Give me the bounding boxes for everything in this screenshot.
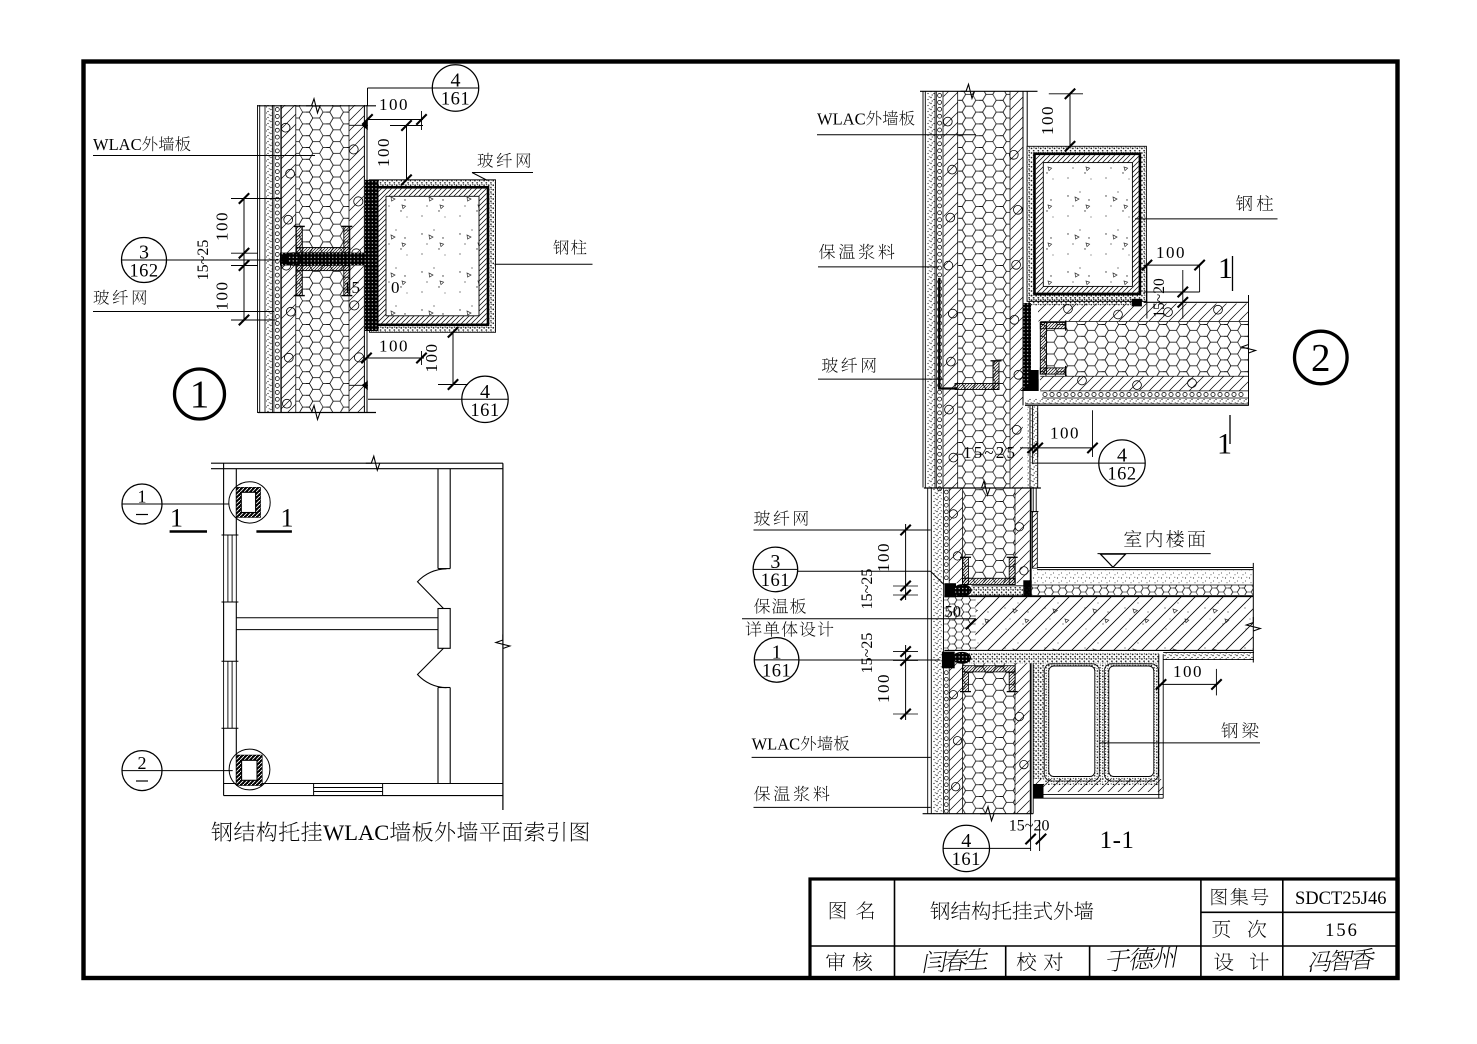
svg-text:100: 100 [1173,662,1203,681]
svg-text:161: 161 [762,661,791,681]
svg-text:2: 2 [138,753,147,773]
svg-text:15~25: 15~25 [963,443,1017,462]
svg-text:3: 3 [139,242,149,264]
svg-text:100: 100 [1038,105,1057,135]
svg-text:1: 1 [772,641,782,663]
svg-text:100: 100 [1050,424,1080,443]
svg-text:3: 3 [770,551,780,573]
svg-text:1: 1 [190,373,210,416]
svg-text:156: 156 [1325,921,1359,941]
svg-text:4: 4 [1117,445,1127,467]
svg-text:100: 100 [379,95,409,114]
svg-text:100: 100 [213,281,232,311]
svg-text:100: 100 [874,673,893,703]
svg-text:161: 161 [761,571,790,591]
svg-text:WLAC: WLAC [817,109,866,128]
svg-text:0: 0 [391,278,400,297]
svg-text:100: 100 [374,137,393,167]
svg-text:4: 4 [451,70,461,92]
svg-text:161: 161 [441,90,470,110]
svg-text:SDCT25J46: SDCT25J46 [1295,889,1387,909]
svg-text:161: 161 [952,850,981,870]
svg-text:15~25: 15~25 [859,569,876,610]
svg-text:WLAC: WLAC [752,735,801,754]
svg-text:100: 100 [379,337,409,356]
svg-text:100: 100 [213,211,232,241]
svg-text:100: 100 [1156,243,1186,262]
svg-text:4: 4 [961,830,971,852]
svg-text:1: 1 [1218,252,1233,285]
svg-text:1: 1 [138,487,147,507]
svg-text:2: 2 [1311,337,1331,380]
svg-text:162: 162 [1107,465,1136,485]
svg-text:1: 1 [170,504,183,533]
svg-text:4: 4 [480,381,490,403]
svg-text:WLAC: WLAC [323,820,389,845]
svg-text:15~20: 15~20 [1151,278,1168,318]
svg-text:1-1: 1-1 [1100,827,1135,854]
svg-text:50: 50 [945,602,962,621]
svg-text:1: 1 [1217,428,1232,461]
svg-text:1: 1 [281,504,294,533]
svg-text:15~20: 15~20 [1009,818,1050,835]
svg-text:162: 162 [129,262,158,282]
svg-text:15~25: 15~25 [859,633,876,674]
svg-text:161: 161 [470,401,499,421]
svg-text:WLAC: WLAC [93,135,142,154]
svg-text:100: 100 [422,343,441,373]
svg-text:100: 100 [874,542,893,572]
